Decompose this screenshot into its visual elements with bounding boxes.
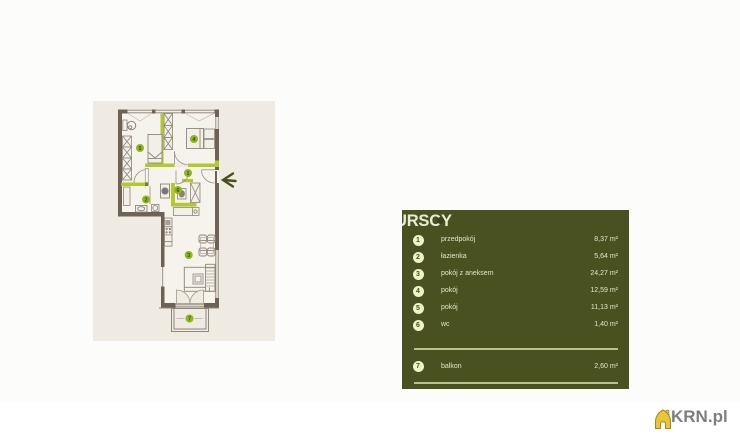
- svg-text:2: 2: [144, 198, 147, 204]
- svg-text:5: 5: [138, 146, 141, 152]
- svg-text:6: 6: [176, 188, 179, 194]
- svg-text:7: 7: [188, 317, 191, 323]
- svg-text:1: 1: [186, 171, 189, 177]
- svg-text:3: 3: [187, 253, 190, 259]
